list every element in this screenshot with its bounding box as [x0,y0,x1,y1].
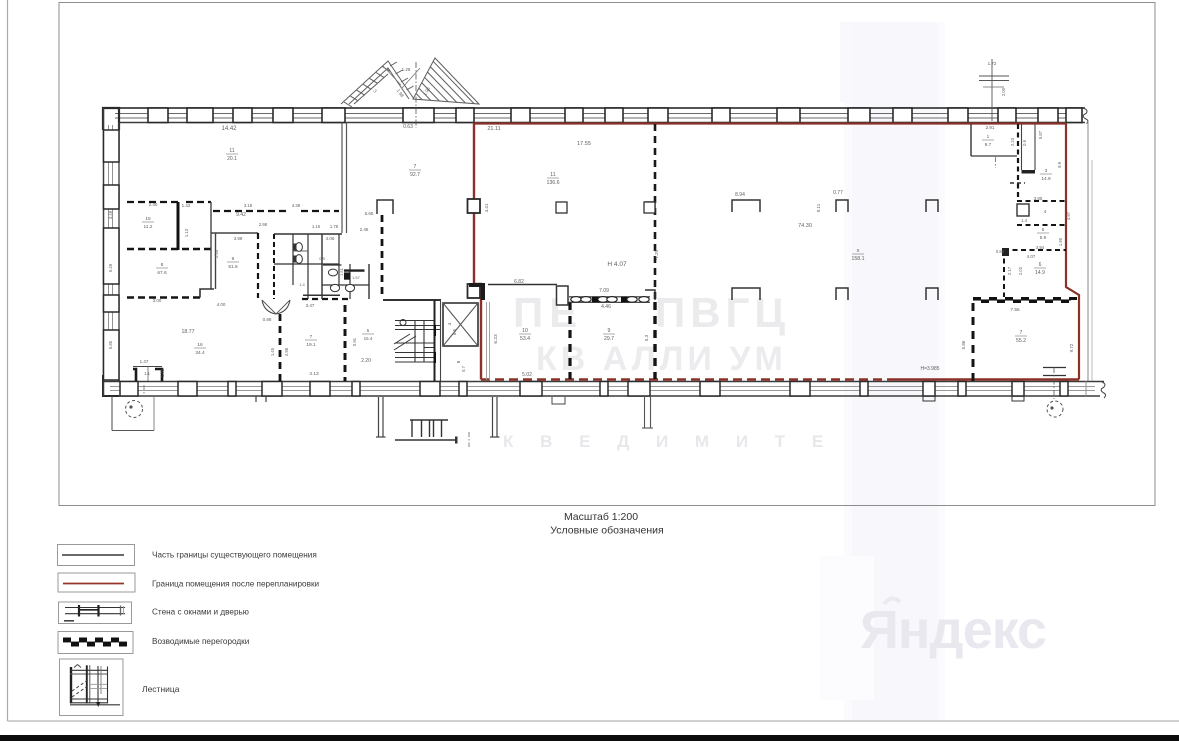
svg-text:Стена с окнами и дверью: Стена с окнами и дверью [152,608,249,617]
svg-text:4.97: 4.97 [1066,211,1071,220]
svg-text:6.5: 6.5 [452,328,457,335]
svg-text:Н=3.985: Н=3.985 [920,366,939,372]
svg-text:2.55: 2.55 [214,249,219,258]
svg-text:136.6: 136.6 [547,180,560,186]
svg-text:7.09: 7.09 [599,288,609,294]
svg-text:14.9: 14.9 [1035,270,1045,276]
svg-text:158.1: 158.1 [852,256,865,262]
svg-text:9.7: 9.7 [985,142,992,148]
svg-text:11.2: 11.2 [144,224,153,230]
svg-text:4.00: 4.00 [217,302,226,307]
svg-text:5.87: 5.87 [1038,130,1043,139]
svg-text:9: 9 [232,256,235,262]
svg-text:4.41: 4.41 [484,203,489,212]
svg-text:КВ АЛЛИ УМ: КВ АЛЛИ УМ [536,340,787,378]
svg-text:1: 1 [987,134,990,140]
svg-text:18.77: 18.77 [182,329,195,335]
svg-text:5.3: 5.3 [644,334,649,341]
svg-text:17.55: 17.55 [577,141,591,147]
svg-text:14.9: 14.9 [1041,176,1051,182]
svg-text:74.30: 74.30 [798,223,812,229]
svg-text:6.23: 6.23 [493,334,499,344]
svg-text:53.4: 53.4 [520,336,530,342]
svg-text:1.47: 1.47 [140,359,149,364]
svg-text:Яндекс: Яндекс [860,600,1046,660]
svg-text:5.02: 5.02 [522,372,532,378]
svg-text:ПВГЦ: ПВГЦ [655,289,790,336]
svg-text:3.49: 3.49 [108,210,113,219]
svg-text:2.20: 2.20 [361,358,371,364]
svg-text:4.46: 4.46 [601,304,611,310]
svg-text:0.9: 0.9 [319,256,325,261]
svg-text:11: 11 [550,172,555,178]
svg-text:3.47: 3.47 [306,303,315,308]
svg-text:0.9: 0.9 [1022,139,1027,145]
svg-text:1.4: 1.4 [299,282,305,287]
svg-text:0.88: 0.88 [263,317,272,322]
svg-text:9.42: 9.42 [236,212,246,218]
svg-text:7: 7 [1020,330,1023,336]
svg-text:Граница помещения после перепл: Граница помещения после перепланировки [152,580,319,589]
svg-text:2.23: 2.23 [1010,137,1015,146]
svg-text:0.80: 0.80 [996,249,1005,254]
svg-text:4: 4 [1044,209,1047,214]
svg-text:1.95: 1.95 [1058,237,1063,246]
svg-text:1.51: 1.51 [339,267,344,276]
svg-text:15: 15 [145,216,151,222]
svg-text:8.94: 8.94 [735,192,745,198]
svg-text:9.9: 9.9 [1057,161,1062,167]
svg-text:3.98: 3.98 [234,236,243,241]
svg-text:3.85: 3.85 [1034,196,1043,201]
svg-text:-7.20: -7.20 [654,249,659,260]
svg-text:21.11: 21.11 [487,126,500,132]
svg-text:Лестница: Лестница [142,684,180,694]
svg-text:5.49: 5.49 [108,263,113,272]
svg-text:5.7: 5.7 [461,365,466,371]
svg-text:2.02: 2.02 [1018,266,1023,275]
svg-text:92.7: 92.7 [410,172,420,178]
svg-text:8: 8 [456,360,461,363]
svg-text:4.07: 4.07 [1027,254,1036,259]
svg-text:55.2: 55.2 [1016,338,1026,344]
svg-text:1.42: 1.42 [182,203,191,208]
svg-text:2.46: 2.46 [360,227,369,232]
svg-text:4.13: 4.13 [309,371,319,377]
svg-text:3.00: 3.00 [153,298,162,303]
svg-text:4.06: 4.06 [326,236,335,241]
svg-text:3.94: 3.94 [1036,245,1045,250]
svg-text:1.13: 1.13 [184,228,189,237]
svg-text:0.77: 0.77 [833,190,843,196]
svg-text:5.86: 5.86 [961,340,966,349]
svg-text:4: 4 [447,322,453,325]
svg-text:1.72: 1.72 [988,61,997,66]
svg-text:1.02: 1.02 [160,368,165,377]
svg-text:4.38: 4.38 [292,203,301,208]
svg-text:5.9: 5.9 [1040,235,1047,240]
svg-text:1.1: 1.1 [144,371,150,376]
svg-text:14.42: 14.42 [221,126,237,132]
svg-text:9.72: 9.72 [1069,343,1074,352]
svg-text:5.65: 5.65 [365,211,374,216]
svg-text:20.1: 20.1 [227,156,237,162]
svg-text:5: 5 [1042,227,1045,232]
svg-text:2.00: 2.00 [1001,87,1006,96]
svg-text:0.11: 0.11 [816,203,821,212]
svg-text:29.7: 29.7 [604,336,614,342]
svg-text:2.40: 2.40 [149,202,158,207]
svg-text:16: 16 [197,342,203,348]
svg-text:8: 8 [161,262,164,268]
svg-text:3: 3 [1045,168,1048,174]
svg-text:3.18: 3.18 [244,203,253,208]
svg-text:1.15: 1.15 [312,224,321,229]
svg-text:Возводимые перегородки: Возводимые перегородки [152,637,249,646]
svg-text:Условные обозначения: Условные обозначения [550,525,663,537]
svg-text:61.6: 61.6 [228,264,238,270]
svg-text:2.98: 2.98 [259,222,268,227]
svg-text:Н 4.07: Н 4.07 [607,261,627,268]
svg-text:6: 6 [1039,262,1042,268]
svg-text:7: 7 [310,334,313,340]
svg-text:5.85: 5.85 [108,340,113,349]
svg-text:0.63: 0.63 [403,124,413,130]
svg-text:11: 11 [229,148,234,154]
svg-text:1.57: 1.57 [352,275,361,280]
svg-text:1.45: 1.45 [270,347,275,356]
svg-text:1.78: 1.78 [330,224,339,229]
svg-text:19.1: 19.1 [306,342,316,348]
svg-text:1.4: 1.4 [1021,218,1027,223]
svg-text:0.91: 0.91 [352,337,357,346]
svg-text:х: х [857,248,860,254]
svg-text:2.17: 2.17 [1007,266,1012,275]
svg-text:К В Е Д И М И Т Е: К В Е Д И М И Т Е [503,432,834,451]
svg-text:1.28: 1.28 [402,67,411,72]
svg-text:67.6: 67.6 [157,270,167,276]
svg-text:9: 9 [608,328,611,334]
svg-text:Часть границы существующего по: Часть границы существующего помещения [152,551,317,560]
svg-text:Масштаб 1:200: Масштаб 1:200 [564,511,638,523]
svg-text:2.91: 2.91 [986,125,995,130]
svg-text:4.98: 4.98 [284,347,289,356]
svg-text:7.56: 7.56 [1010,307,1020,313]
svg-text:15.4: 15.4 [364,336,373,341]
svg-text:6.82: 6.82 [514,279,524,285]
svg-text:7: 7 [414,164,417,170]
svg-text:34.4: 34.4 [195,350,205,356]
svg-text:10: 10 [522,328,528,334]
